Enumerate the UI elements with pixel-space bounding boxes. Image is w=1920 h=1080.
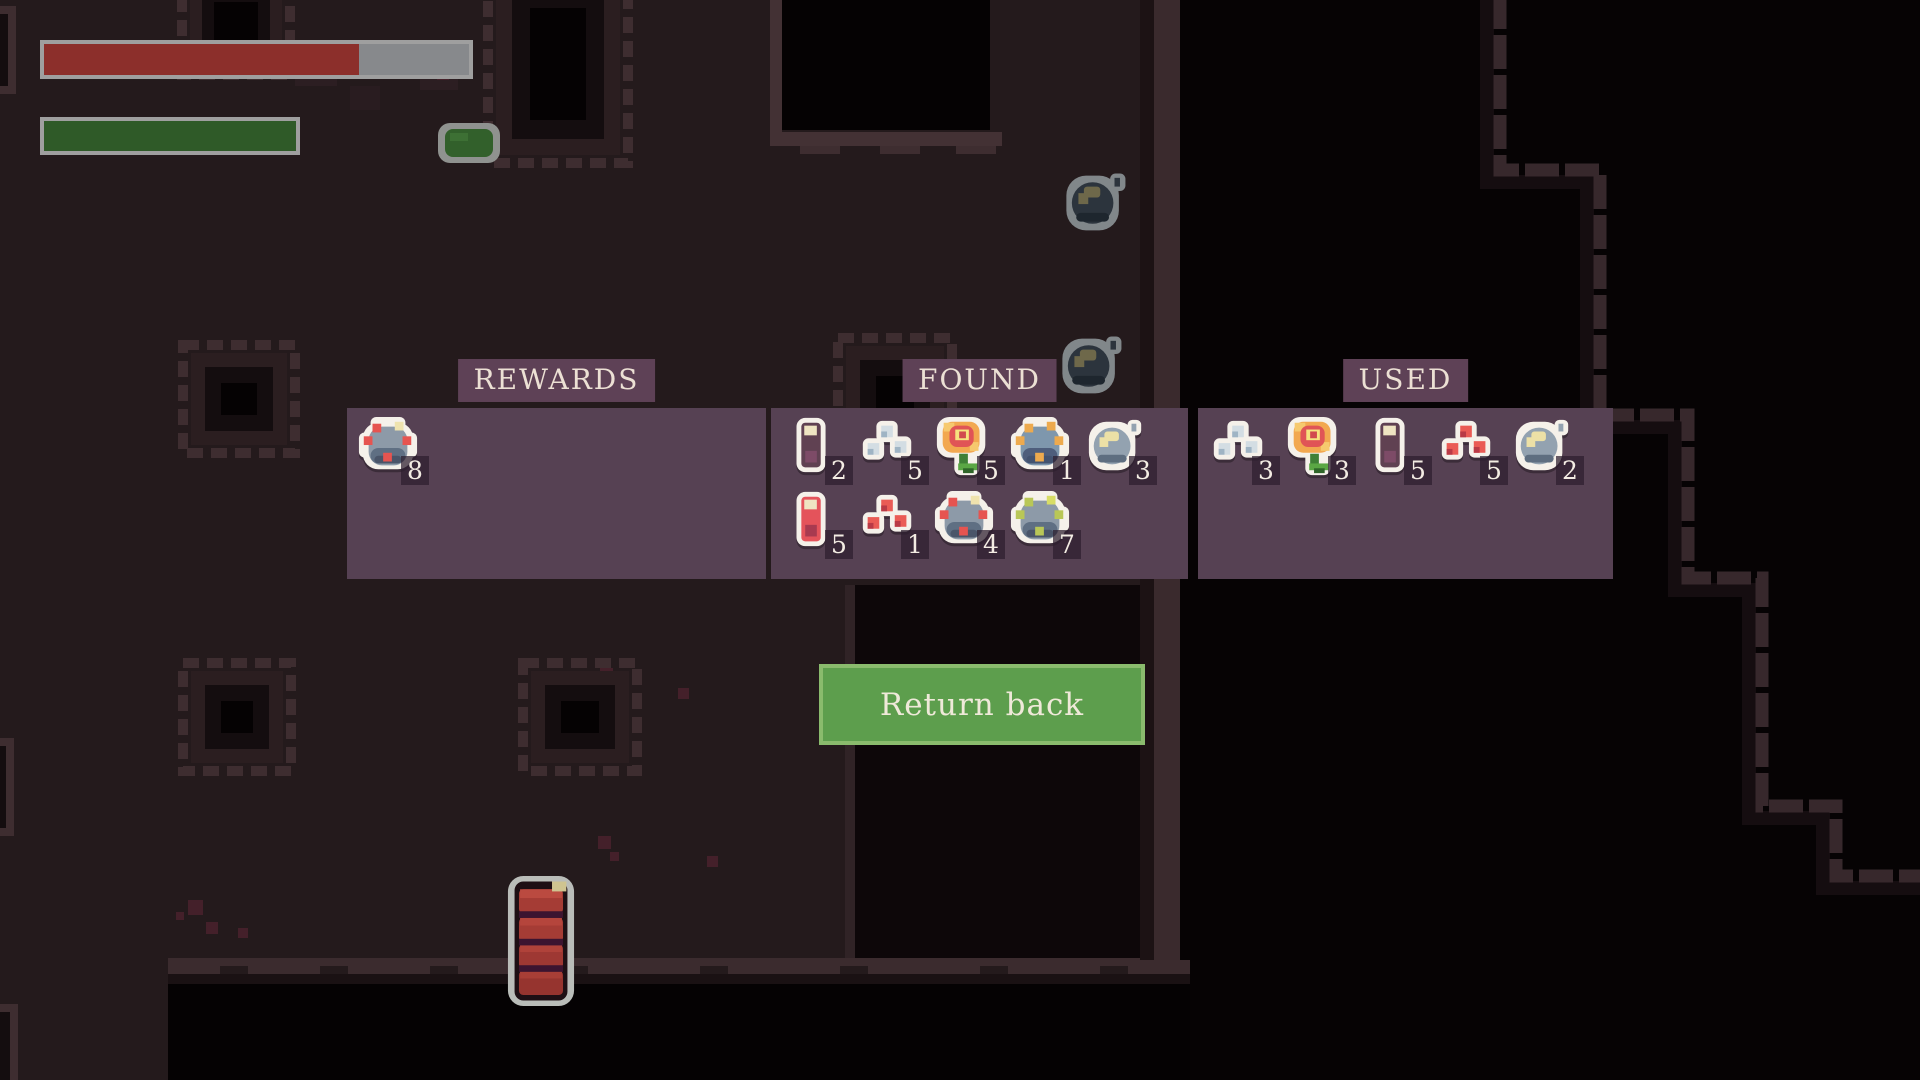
- dark-orb-icon: [1058, 331, 1128, 405]
- item-count: 2: [1556, 456, 1584, 485]
- return-back-button[interactable]: Return back: [819, 664, 1145, 745]
- used-item-list: 3 3 55 2: [1206, 413, 1609, 575]
- rewards-panel-title: REWARDS: [458, 359, 656, 402]
- item-count: 5: [825, 530, 853, 559]
- item-count: 3: [1252, 456, 1280, 485]
- item-slot: 5: [1358, 413, 1434, 487]
- item-count: 1: [1053, 456, 1081, 485]
- stamina-bar: [40, 117, 300, 155]
- item-count: 5: [977, 456, 1005, 485]
- found-panel-title: FOUND: [902, 359, 1057, 402]
- found-panel: FOUND 25 5 1 3 51 4 7: [771, 408, 1188, 579]
- item-count: 3: [1129, 456, 1157, 485]
- game-screen: REWARDS 8 FOUND 25 5 1 3 51 4 7 US: [0, 0, 1920, 1080]
- item-slot: 3: [1206, 413, 1282, 487]
- item-slot: 4: [931, 487, 1007, 561]
- item-count: 5: [1480, 456, 1508, 485]
- item-slot: 1: [855, 487, 931, 561]
- health-bar: [40, 40, 473, 79]
- item-count: 5: [901, 456, 929, 485]
- dark-orb-icon: [1062, 168, 1132, 242]
- used-panel-title: USED: [1343, 359, 1469, 402]
- item-slot: 2: [779, 413, 855, 487]
- item-count: 3: [1328, 456, 1356, 485]
- found-item-list: 25 5 1 3 51 4 7: [779, 413, 1184, 575]
- item-slot: 2: [1510, 413, 1586, 487]
- item-slot: 7: [1007, 487, 1083, 561]
- rewards-panel: REWARDS 8: [347, 408, 766, 579]
- item-slot: 5: [1434, 413, 1510, 487]
- item-count: 4: [977, 530, 1005, 559]
- item-slot: 1: [1007, 413, 1083, 487]
- rewards-item-list: 8: [355, 413, 762, 575]
- item-slot: 8: [355, 413, 431, 487]
- item-slot: 5: [855, 413, 931, 487]
- item-slot: 3: [1083, 413, 1159, 487]
- green-pickup-icon: [438, 120, 500, 170]
- item-count: 8: [401, 456, 429, 485]
- item-count: 2: [825, 456, 853, 485]
- item-count: 1: [901, 530, 929, 559]
- barrel-stack-icon: [505, 876, 577, 1010]
- health-bar-fill: [44, 44, 359, 75]
- stamina-bar-fill: [44, 121, 296, 151]
- item-slot: 5: [931, 413, 1007, 487]
- used-panel: USED 3 3 55 2: [1198, 408, 1613, 579]
- item-slot: 3: [1282, 413, 1358, 487]
- item-slot: 5: [779, 487, 855, 561]
- item-count: 5: [1404, 456, 1432, 485]
- item-count: 7: [1053, 530, 1081, 559]
